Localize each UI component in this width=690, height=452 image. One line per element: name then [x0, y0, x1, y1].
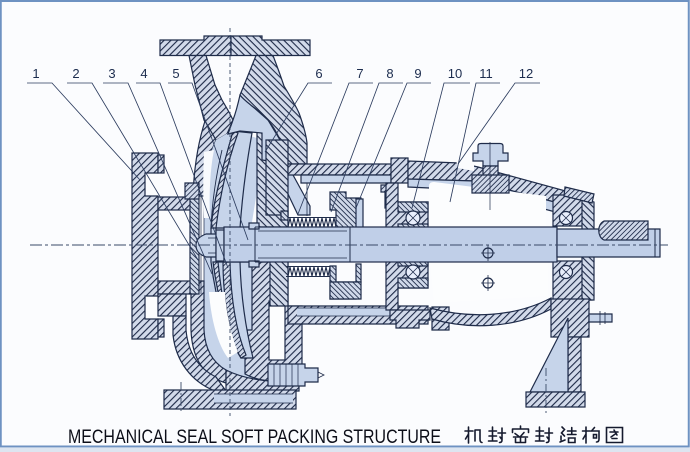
svg-text:11: 11: [479, 66, 493, 81]
svg-text:MECHANICAL SEAL SOFT PACKING S: MECHANICAL SEAL SOFT PACKING STRUCTURE: [68, 427, 441, 448]
svg-text:4: 4: [140, 66, 147, 81]
svg-text:12: 12: [519, 66, 533, 81]
svg-text:8: 8: [386, 66, 393, 81]
svg-text:6: 6: [315, 66, 322, 81]
svg-text:3: 3: [108, 66, 115, 81]
svg-text:1: 1: [32, 66, 39, 81]
svg-text:5: 5: [172, 66, 179, 81]
svg-text:2: 2: [72, 66, 79, 81]
svg-text:9: 9: [414, 66, 421, 81]
svg-text:7: 7: [356, 66, 363, 81]
svg-text:10: 10: [448, 66, 462, 81]
